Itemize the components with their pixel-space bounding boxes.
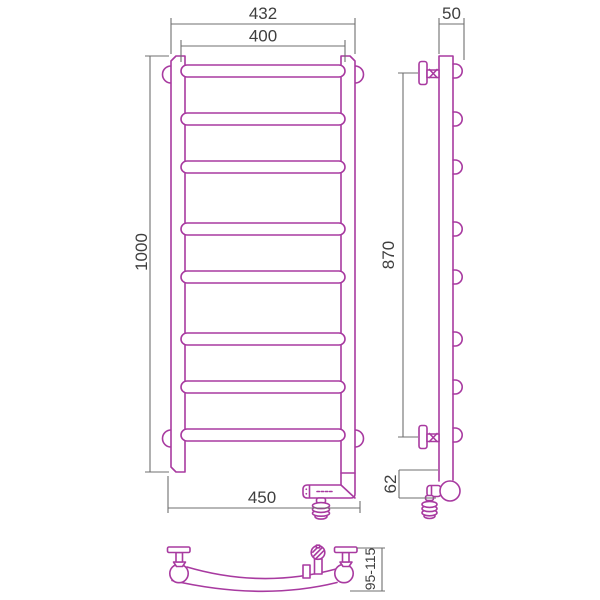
dim-side-top-depth: 50 [439,4,464,60]
rung [181,113,345,125]
dim-side-bottom-offset-label: 62 [381,475,400,494]
curved-tube-top-edge [187,567,336,579]
mount-boss-top-left [163,66,171,83]
front-view [163,56,364,519]
rung [181,381,345,393]
thermostat-gauge [311,545,325,559]
towel-rail-technical-drawing: 432 400 1000 450 [0,0,600,600]
wall-bracket-right-top-view [335,547,358,567]
mount-boss-bottom-right [355,430,364,447]
gauge-cap [316,545,319,548]
rung [181,223,345,235]
rung [181,65,345,77]
housing-screw [305,493,307,495]
rung [181,161,345,173]
power-cable-coil-side [422,496,437,519]
heater-body-end [440,481,460,501]
rung-end [453,332,462,346]
dim-front-height-label: 1000 [132,233,151,271]
rung-end [453,270,462,284]
wall-bracket-bottom [419,426,439,449]
curved-tube-bottom-edge [172,581,337,592]
dim-wall-clearance: 95-115 [350,548,385,591]
housing-screw [305,488,307,490]
rung-end [453,112,462,126]
side-tube [439,56,453,481]
rung [181,271,345,283]
dim-side-top-depth-label: 50 [442,4,461,23]
thermostat-stand [315,559,323,574]
dim-front-inner-width-label: 400 [249,27,277,46]
dim-front-bottom-width-label: 450 [248,488,276,507]
rung-end [453,160,462,174]
rung [181,333,345,345]
bottom-view [168,545,358,591]
rung-end [453,64,462,78]
wall-bracket-left-top-view [168,547,191,567]
dim-front-outer-width-label: 432 [249,4,277,23]
side-view [419,56,462,519]
mount-boss-bottom-left [163,430,172,447]
drawing-svg: 432 400 1000 450 [0,0,600,600]
rung-end [453,222,462,236]
cable-outlet-tab [303,565,310,578]
rung-end [453,380,462,394]
wall-bracket-top [419,62,439,85]
dim-wall-clearance-label: 95-115 [362,548,378,591]
dim-side-bracket-span-label: 870 [379,241,398,269]
heater-end-side [422,481,460,519]
dim-front-inner-width: 400 [181,27,345,63]
rung-ends [453,64,462,442]
dim-front-height: 1000 [132,56,169,472]
power-cable-coil-front [313,498,330,519]
rung [181,429,345,441]
dim-side-bracket-span: 870 [379,73,418,437]
mount-boss-top-right [355,66,363,83]
rung-end [453,428,462,442]
